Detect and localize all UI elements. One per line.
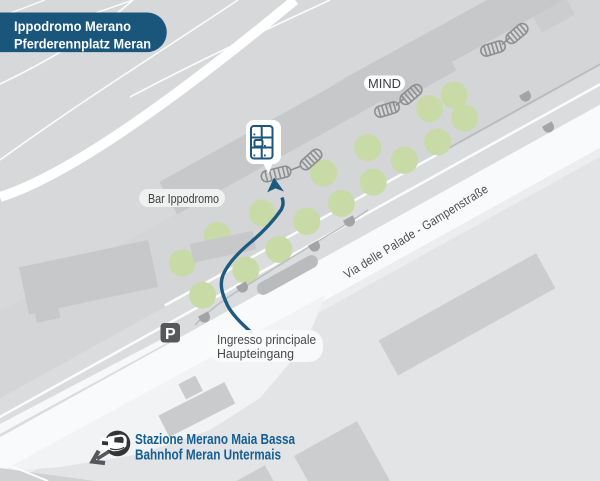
svg-text:Ingresso principale: Ingresso principale	[217, 333, 316, 347]
svg-text:Stazione Merano Maia Bassa: Stazione Merano Maia Bassa	[135, 432, 296, 448]
svg-text:Haupteingang: Haupteingang	[217, 347, 294, 361]
svg-text:Pferderennplatz Meran: Pferderennplatz Meran	[14, 36, 151, 52]
svg-text:Bar Ippodromo: Bar Ippodromo	[148, 192, 219, 206]
svg-text:MIND: MIND	[368, 76, 401, 91]
svg-text:P: P	[165, 326, 176, 343]
svg-text:Ippodromo Merano: Ippodromo Merano	[14, 18, 131, 34]
svg-text:Bahnhof Meran Untermais: Bahnhof Meran Untermais	[135, 448, 281, 464]
